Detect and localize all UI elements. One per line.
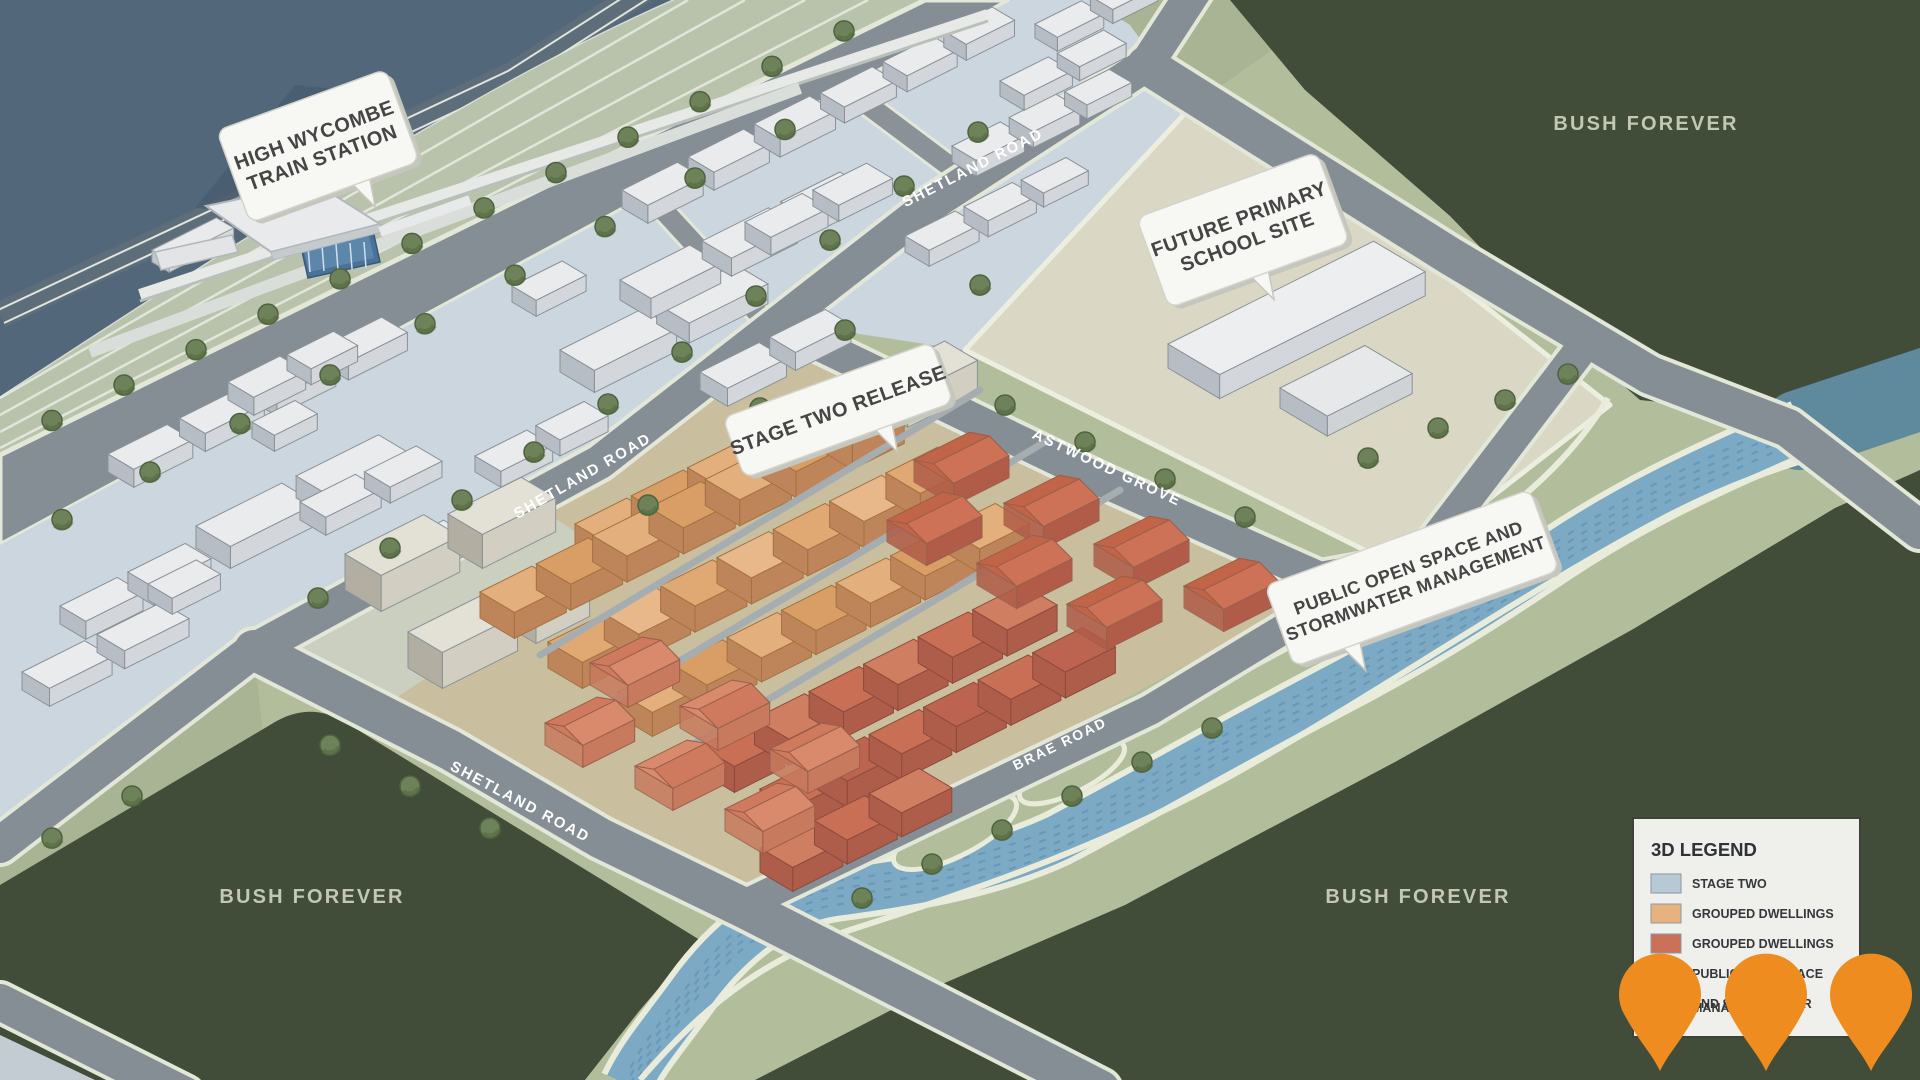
svg-text:3D LEGEND: 3D LEGEND xyxy=(1651,839,1757,860)
svg-text:GROUPED DWELLINGS: GROUPED DWELLINGS xyxy=(1692,937,1834,951)
svg-text:BUSH FOREVER: BUSH FOREVER xyxy=(219,886,404,908)
svg-text:BUSH FOREVER: BUSH FOREVER xyxy=(1553,113,1738,135)
svg-text:BUSH FOREVER: BUSH FOREVER xyxy=(1325,886,1510,908)
svg-text:STAGE TWO: STAGE TWO xyxy=(1692,877,1767,891)
svg-text:GROUPED DWELLINGS: GROUPED DWELLINGS xyxy=(1692,907,1834,921)
